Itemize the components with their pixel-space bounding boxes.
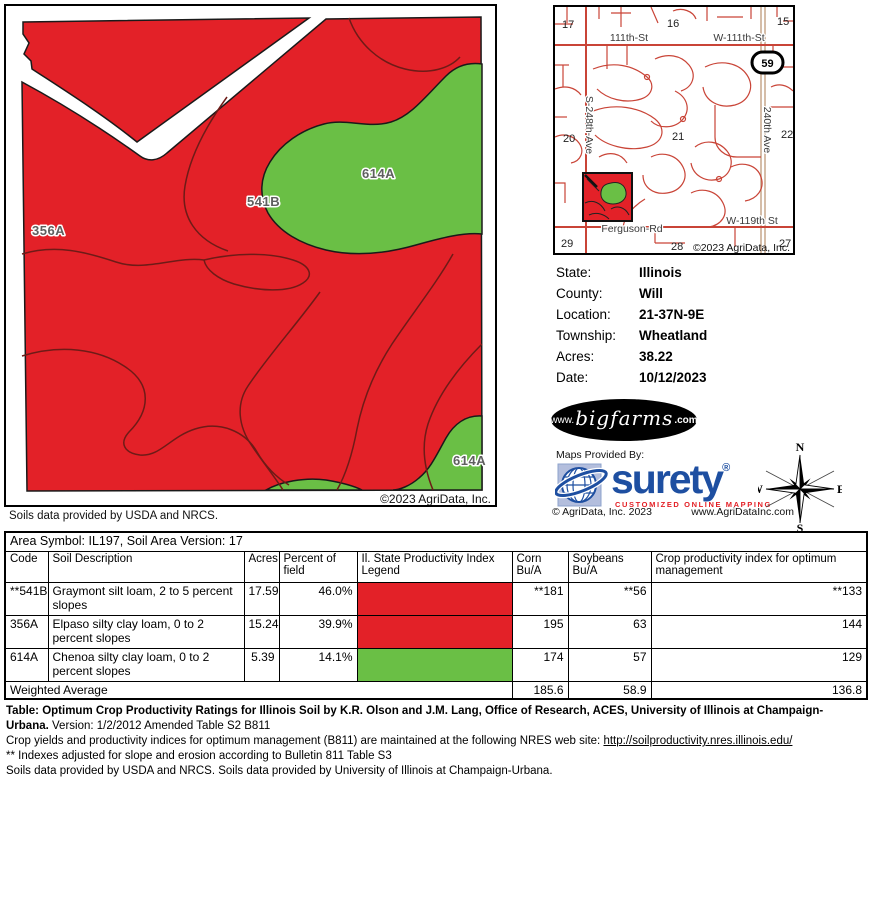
compass-rose-icon: N E S W	[758, 441, 842, 533]
street-w-111th-st: W-111th-St	[713, 32, 764, 44]
township-value: Wheatland	[639, 325, 707, 346]
info-row-acres: Acres: 38.22	[556, 346, 707, 367]
weighted-crop-index: 136.8	[651, 681, 867, 699]
section-15: 15	[777, 16, 789, 28]
bigfarms-www: www.	[550, 415, 574, 426]
bigfarms-logo: www. bigfarms .com	[551, 399, 697, 441]
cell-code: **541B	[5, 582, 48, 615]
table-row: 356A Elpaso silty clay loam, 0 to 2 perc…	[5, 615, 867, 648]
info-row-township: Township: Wheatland	[556, 325, 707, 346]
cell-crop-index: **133	[651, 582, 867, 615]
cell-soybeans: 57	[568, 648, 651, 681]
footnotes: Table: Optimum Crop Productivity Ratings…	[6, 704, 864, 779]
cell-soybeans: **56	[568, 582, 651, 615]
nres-link[interactable]: http://soilproductivity.nres.illinois.ed…	[603, 735, 792, 747]
col-soil-description: Soil Description	[48, 551, 244, 582]
soil-label-541B: 541B	[247, 194, 280, 209]
legend-swatch	[357, 648, 512, 681]
weighted-soybeans: 58.9	[568, 681, 651, 699]
registered-mark: ®	[722, 464, 730, 473]
soil-label-614A-lower: 614A	[453, 453, 486, 468]
table-header-row: Code Soil Description Acres Percent of f…	[5, 551, 867, 582]
street-ferguson-rd: Ferguson-Rd	[601, 223, 662, 235]
section-21: 21	[672, 131, 684, 143]
street-w-119th-st: W-119th St	[726, 215, 778, 227]
area-symbol-row: Area Symbol: IL197, Soil Area Version: 1…	[5, 532, 867, 551]
state-value: Illinois	[639, 262, 682, 283]
compass-north-label: N	[796, 441, 805, 454]
field-location-inset	[583, 173, 632, 221]
col-percent-of-field: Percent of field	[279, 551, 357, 582]
surety-text-block: surety ® CUSTOMIZED ONLINE MAPPING	[611, 462, 772, 509]
cell-acres: 15.24	[244, 615, 279, 648]
col-crop-index: Crop productivity index for optimum mana…	[651, 551, 867, 582]
table-row: **541B Graymont silt loam, 2 to 5 percen…	[5, 582, 867, 615]
street-111th-st: 111th-St	[610, 32, 648, 44]
table-row: 614A Chenoa silty clay loam, 0 to 2 perc…	[5, 648, 867, 681]
cell-acres: 17.59	[244, 582, 279, 615]
info-row-state: State: Illinois	[556, 262, 707, 283]
col-corn: Corn Bu/A	[512, 551, 568, 582]
street-240th-ave: 240th Ave	[761, 107, 773, 154]
cell-code: 356A	[5, 615, 48, 648]
cell-crop-index: 144	[651, 615, 867, 648]
location-map-copyright: ©2023 AgriData, Inc.	[693, 242, 790, 253]
bigfarms-name: bigfarms	[575, 406, 673, 430]
section-16: 16	[667, 18, 679, 30]
footnote-soils-data: Soils data provided by USDA and NRCS. So…	[6, 764, 864, 779]
compass-west-label: W	[758, 482, 763, 496]
cell-corn: 195	[512, 615, 568, 648]
agridata-copyright: © AgriData, Inc. 2023	[552, 506, 652, 518]
section-28: 28	[671, 241, 683, 253]
soil-map-drawing: 356A 541B 614A 614A ©2023 AgriData, Inc.	[6, 6, 495, 505]
area-symbol-text: Area Symbol: IL197, Soil Area Version: 1…	[5, 532, 867, 551]
section-22: 22	[781, 129, 793, 141]
street-s-248th-ave: S-248th-Ave	[583, 96, 595, 154]
weighted-corn: 185.6	[512, 681, 568, 699]
parcel-info: State: Illinois County: Will Location: 2…	[556, 262, 707, 388]
col-soybeans: Soybeans Bu/A	[568, 551, 651, 582]
footnote-indexes: ** Indexes adjusted for slope and erosio…	[6, 749, 864, 764]
crop-yields-text: Crop yields and productivity indices for…	[6, 735, 603, 747]
soil-productivity-table: Area Symbol: IL197, Soil Area Version: 1…	[4, 531, 868, 700]
highway-59-number: 59	[761, 58, 773, 70]
cell-crop-index: 129	[651, 648, 867, 681]
cell-code: 614A	[5, 648, 48, 681]
surety-globe-icon	[555, 462, 609, 508]
col-productivity-legend: Il. State Productivity Index Legend	[357, 551, 512, 582]
cell-description: Chenoa silty clay loam, 0 to 2 percent s…	[48, 648, 244, 681]
cell-soybeans: 63	[568, 615, 651, 648]
cell-percent: 46.0%	[279, 582, 357, 615]
info-row-date: Date: 10/12/2023	[556, 367, 707, 388]
col-acres: Acres	[244, 551, 279, 582]
soil-label-356A: 356A	[32, 223, 65, 238]
section-20: 20	[563, 133, 575, 145]
soil-label-614A-upper: 614A	[362, 166, 395, 181]
weighted-average-label: Weighted Average	[5, 681, 512, 699]
county-value: Will	[639, 283, 663, 304]
soil-map: 356A 541B 614A 614A ©2023 AgriData, Inc.	[4, 4, 497, 507]
location-value: 21-37N-9E	[639, 304, 704, 325]
footnote-crop-yields: Crop yields and productivity indices for…	[6, 734, 864, 749]
info-row-location: Location: 21-37N-9E	[556, 304, 707, 325]
col-code: Code	[5, 551, 48, 582]
date-label: Date:	[556, 367, 639, 388]
location-label: Location:	[556, 304, 639, 325]
township-label: Township:	[556, 325, 639, 346]
compass-east-label: E	[837, 482, 842, 496]
surety-logo: surety ® CUSTOMIZED ONLINE MAPPING	[555, 462, 772, 509]
acres-value: 38.22	[639, 346, 673, 367]
cell-percent: 39.9%	[279, 615, 357, 648]
section-17: 17	[562, 19, 574, 31]
soil-report-page: { "colors": { "map_red": "#e32128", "map…	[0, 0, 870, 900]
section-29: 29	[561, 238, 573, 250]
cell-corn: 174	[512, 648, 568, 681]
highway-59-shield: 59	[752, 52, 783, 73]
weighted-average-row: Weighted Average 185.6 58.9 136.8	[5, 681, 867, 699]
citation-version: Version: 1/2/2012 Amended Table S2 B811	[49, 720, 270, 732]
county-label: County:	[556, 283, 639, 304]
location-map: 59 17 16 15 20 21 22 29 28 27 111th-St W…	[553, 5, 795, 255]
footnote-citation: Table: Optimum Crop Productivity Ratings…	[6, 704, 864, 734]
cell-corn: **181	[512, 582, 568, 615]
legend-swatch	[357, 615, 512, 648]
date-value: 10/12/2023	[639, 367, 707, 388]
surety-wordmark: surety	[611, 462, 722, 497]
bigfarms-com: .com	[674, 415, 697, 426]
cell-description: Elpaso silty clay loam, 0 to 2 percent s…	[48, 615, 244, 648]
cell-description: Graymont silt loam, 2 to 5 percent slope…	[48, 582, 244, 615]
cell-acres: 5.39	[244, 648, 279, 681]
location-map-drawing: 59 17 16 15 20 21 22 29 28 27 111th-St W…	[555, 7, 793, 253]
soils-data-note: Soils data provided by USDA and NRCS.	[9, 510, 218, 522]
acres-label: Acres:	[556, 346, 639, 367]
legend-swatch	[357, 582, 512, 615]
cell-percent: 14.1%	[279, 648, 357, 681]
state-label: State:	[556, 262, 639, 283]
info-row-county: County: Will	[556, 283, 707, 304]
map-copyright: ©2023 AgriData, Inc.	[380, 492, 491, 505]
